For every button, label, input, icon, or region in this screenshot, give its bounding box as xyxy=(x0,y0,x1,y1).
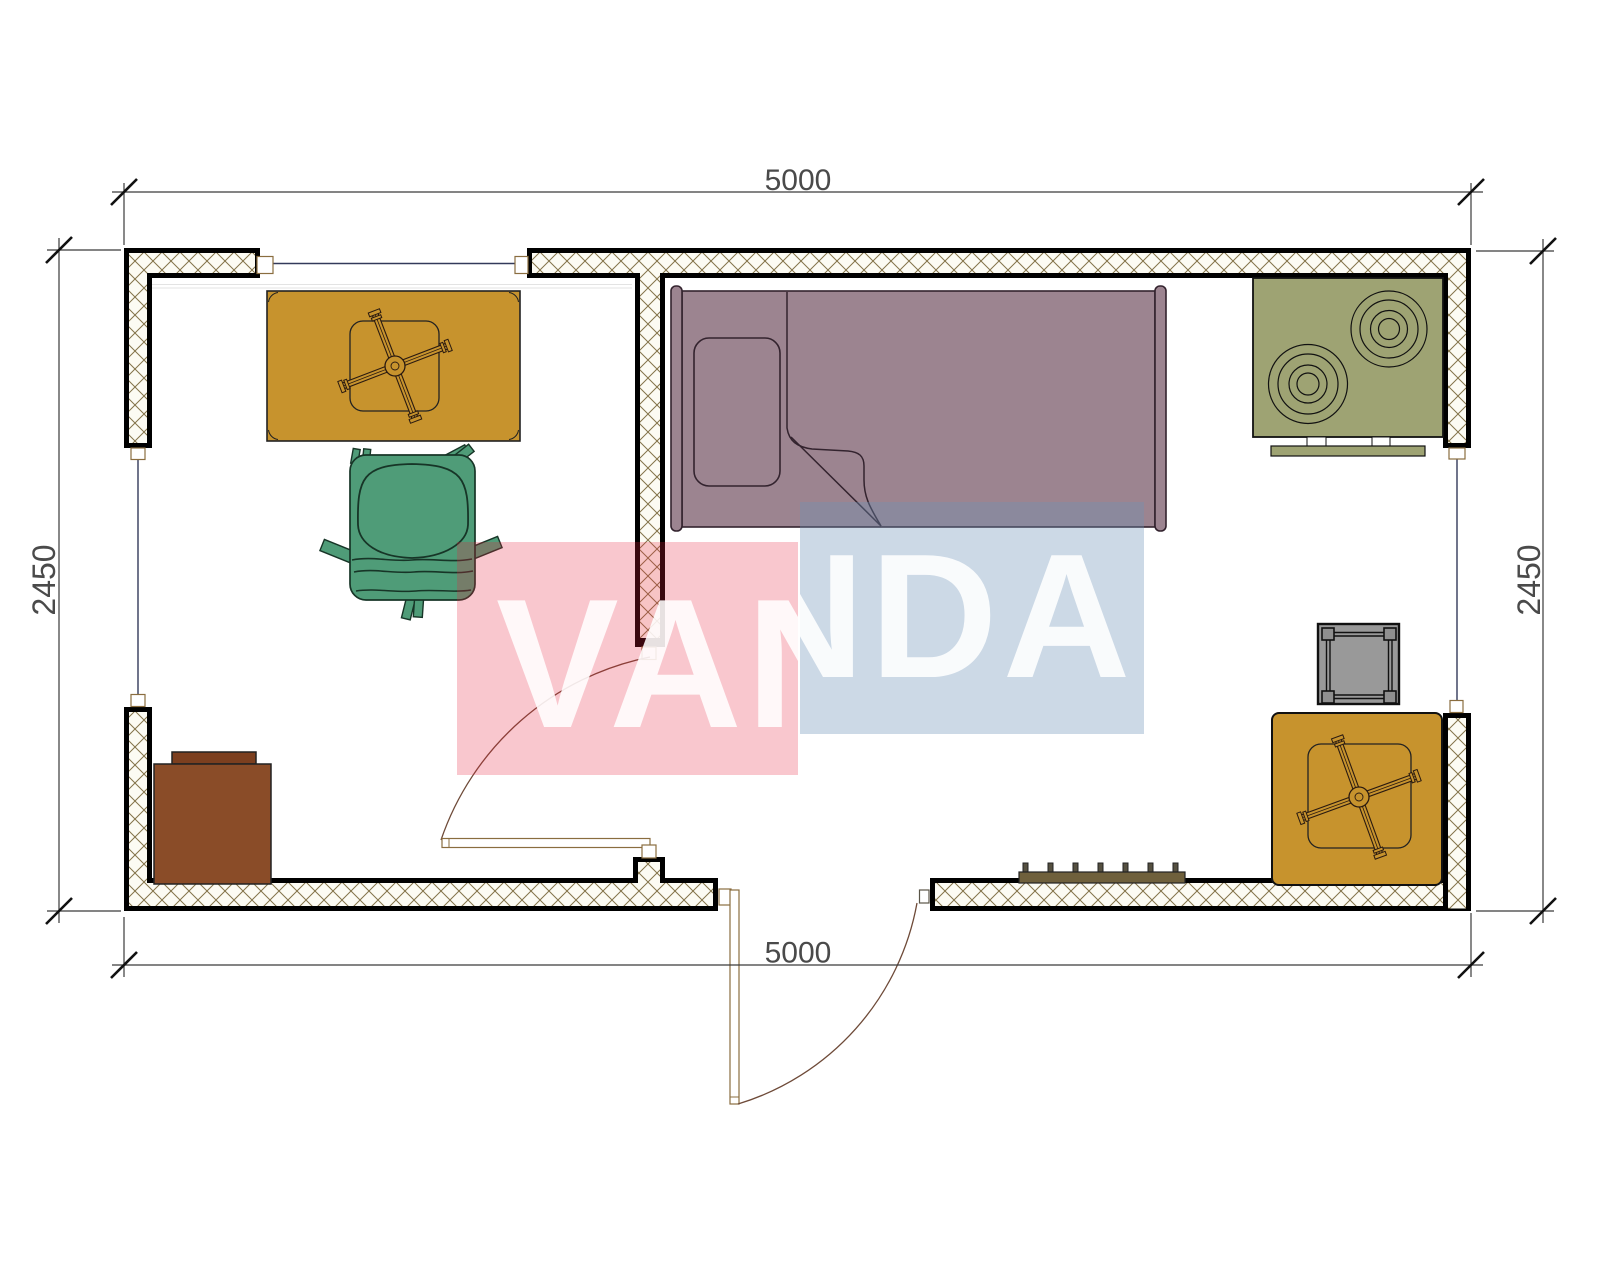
svg-text:2450: 2450 xyxy=(1511,544,1547,615)
svg-text:5000: 5000 xyxy=(765,937,832,970)
svg-text:2450: 2450 xyxy=(26,544,62,615)
svg-text:5000: 5000 xyxy=(765,164,832,197)
